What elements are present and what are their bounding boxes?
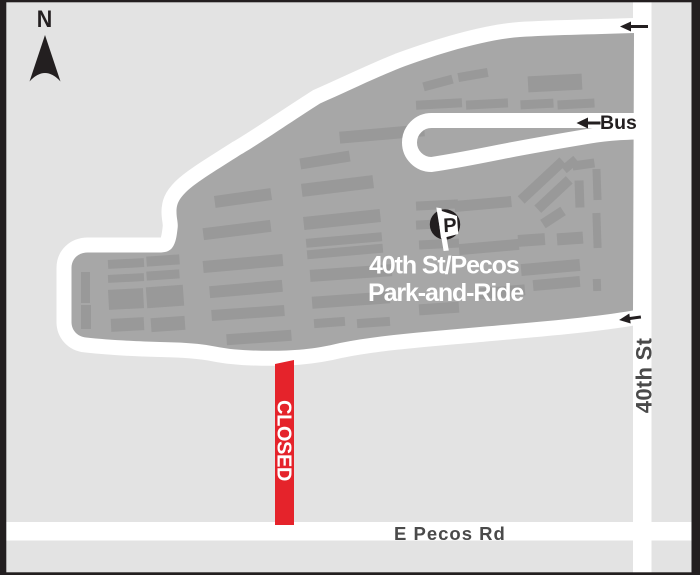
svg-text:CLOSED: CLOSED [272,400,294,481]
svg-text:P: P [443,215,457,238]
svg-text:40th St/Pecos: 40th St/Pecos [369,252,519,280]
svg-text:N: N [37,6,53,33]
svg-text:Park-and-Ride: Park-and-Ride [368,279,524,307]
svg-text:40th St: 40th St [632,337,657,413]
svg-text:E Pecos Rd: E Pecos Rd [394,523,506,544]
svg-text:Bus: Bus [600,112,637,134]
